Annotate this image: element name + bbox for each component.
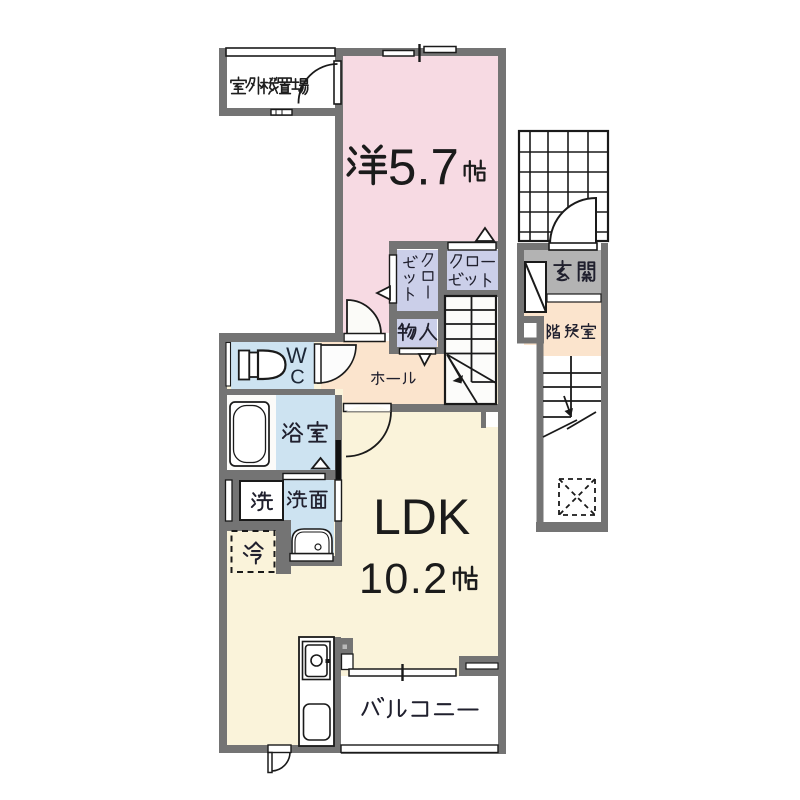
svg-text:LDK: LDK bbox=[373, 489, 470, 545]
svg-text:10.2: 10.2 bbox=[359, 555, 449, 603]
svg-text:C: C bbox=[290, 367, 304, 389]
svg-text:W: W bbox=[286, 343, 307, 368]
svg-text:5.7: 5.7 bbox=[388, 139, 459, 196]
